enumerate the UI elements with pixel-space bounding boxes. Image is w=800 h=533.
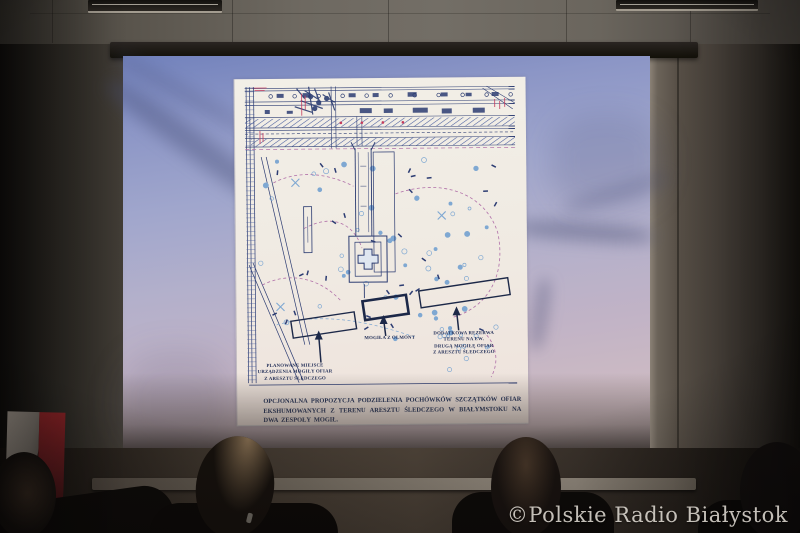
map-label-reserve-area: DODATKOWA REZERWA TERENU NA EW. DRUGĄ MO…: [423, 331, 505, 358]
branch-shadow: [515, 219, 656, 245]
plan-bottom-rule: [249, 383, 517, 385]
site-plan-map: [245, 85, 520, 387]
cross-icon: [358, 249, 378, 269]
ceiling-seam: [30, 13, 770, 14]
branch-shadow: [119, 351, 234, 456]
branch-shadow: [111, 49, 249, 135]
watermark: ©Polskie Radio Białystok: [507, 503, 788, 527]
label-arrow-lines: [319, 310, 459, 362]
ceiling-light-left: [88, 0, 222, 13]
projector-screen: PLANOWANE MIEJSCE URZĄDZENIA MOGIŁY OFIA…: [123, 56, 650, 452]
ceiling-light-right: [616, 0, 758, 11]
railway-hatch: [245, 87, 257, 383]
road-hatch-strip: [245, 117, 515, 128]
red-survey-marks: [253, 86, 505, 144]
grave-site-rects: [290, 278, 510, 338]
road-band: [245, 85, 516, 149]
road-hatch-strip: [251, 137, 515, 147]
screen-bottom-rail: [92, 478, 696, 490]
wall-right: [650, 44, 800, 464]
road-junction-cluster: [295, 86, 335, 114]
wall-corner: [677, 44, 679, 458]
branch-shadow: [551, 114, 663, 209]
ceiling-seam: [52, 0, 53, 43]
roadside-buildings: [265, 91, 499, 115]
press-conference-photo: PLANOWANE MIEJSCE URZĄDZENIA MOGIŁY OFIA…: [0, 0, 800, 533]
branch-shadow: [528, 277, 553, 350]
grave-rect-right: [419, 278, 511, 308]
branch-shadow: [101, 72, 290, 219]
grave-rect-left: [291, 312, 357, 338]
contour-lines: [245, 147, 517, 379]
survey-x-marks: [275, 177, 446, 310]
grave-rect-center: [362, 295, 408, 320]
label-arrow-heads: [314, 306, 460, 339]
map-label-planned-grave: PLANOWANE MIEJSCE URZĄDZENIA MOGIŁY OFIA…: [249, 363, 341, 383]
shrub-ticks-layer: [271, 162, 498, 333]
slide-document: PLANOWANE MIEJSCE URZĄDZENIA MOGIŁY OFIA…: [233, 77, 528, 427]
memorial-cross: [349, 236, 387, 282]
monument-alley: [303, 142, 395, 299]
railway-strip: [246, 87, 310, 384]
ceiling-seam: [388, 0, 389, 43]
contour-light: [277, 318, 417, 339]
map-label-olmont-grave: MOGIŁA Z OLMONT: [353, 336, 427, 343]
ceiling-seam: [232, 0, 233, 43]
slide-caption: OPCJONALNA PROPOZYCJA PODZIELENIA POCHÓW…: [263, 395, 521, 426]
wall-left: [0, 44, 124, 464]
trees-layer: [257, 93, 515, 374]
ceiling-seam: [566, 0, 567, 43]
